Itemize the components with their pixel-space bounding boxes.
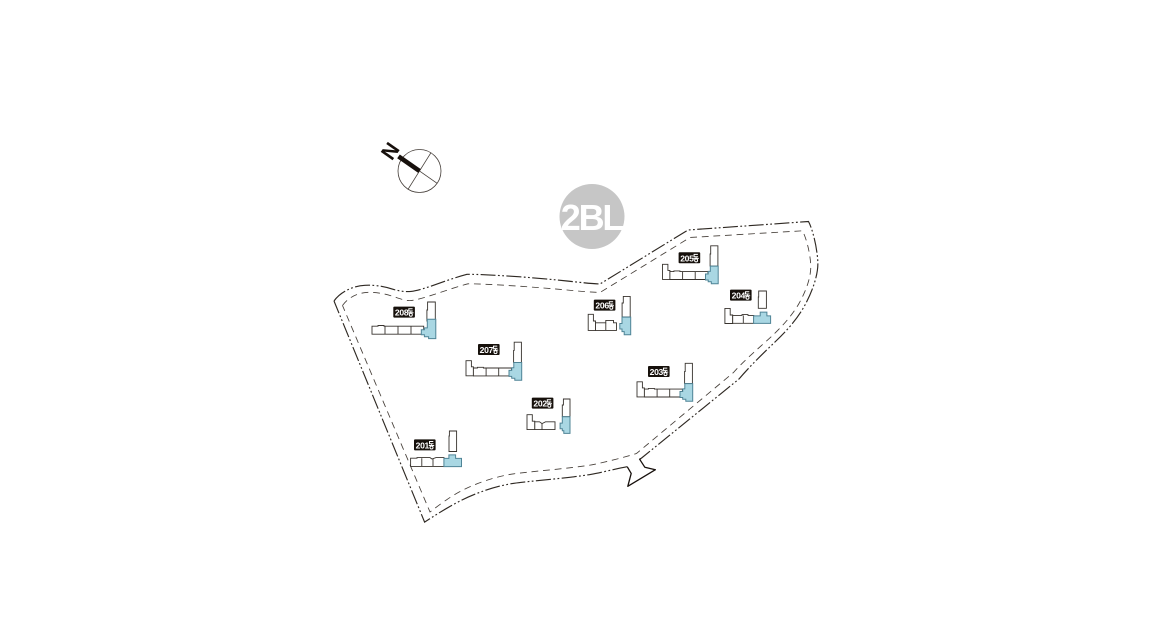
svg-text:208: 208 — [395, 308, 409, 318]
svg-text:2BL: 2BL — [561, 197, 624, 238]
svg-text:201: 201 — [416, 441, 430, 451]
svg-text:206: 206 — [595, 301, 609, 311]
svg-text:202: 202 — [533, 399, 547, 409]
svg-text:205: 205 — [680, 253, 694, 263]
svg-text:207: 207 — [480, 345, 494, 355]
svg-text:203: 203 — [650, 367, 664, 377]
svg-text:204: 204 — [732, 291, 746, 301]
